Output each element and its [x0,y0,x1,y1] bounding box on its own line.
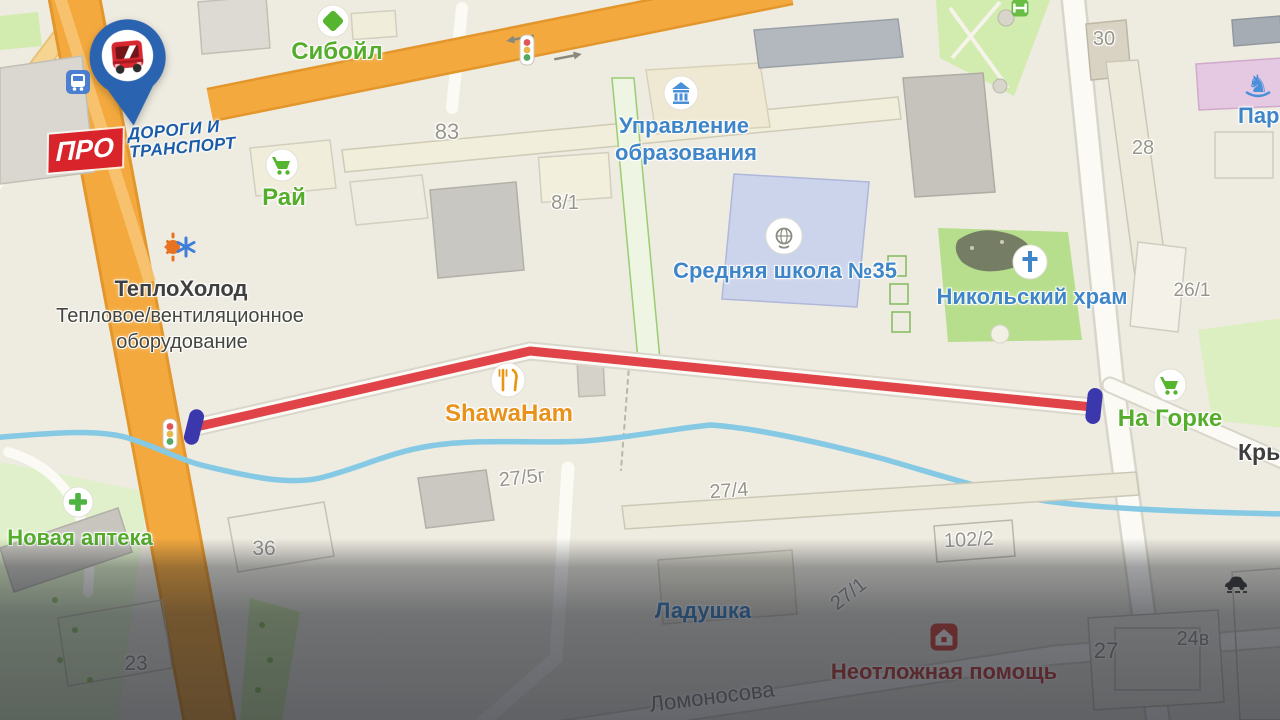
poi-label-nagorke[interactable]: На Горке [1118,405,1222,433]
building-number-28: 28 [1132,137,1154,160]
brand-pro-badge: ПРО [48,128,123,173]
poi-label-teplokholod[interactable]: ТеплоХолод [114,276,247,302]
bus-pin-icon [81,14,177,137]
poi-label-rai[interactable]: Рай [262,184,306,212]
building-number-83: 83 [435,119,459,145]
closure-info-banner: ПЕРЕКРЫТИЕ В ПЕРИОД ПРАЗДНОВАНИЯ РОЖДЕСТ… [0,538,1280,720]
poi-sublabel-teplokholod-1: Тепловое/вентиляционное [56,305,304,328]
map-canvas[interactable]: ♞ Сибойл Рай 83 8/1 Управление образован… [0,0,1280,720]
poi-label-khram[interactable]: Никольский храм [936,284,1127,310]
building-number-27-4: 27/4 [709,479,749,505]
brand-logo: ПРО ДОРОГИ И ТРАНСПОРТ [29,1,263,190]
poi-label-upravlenie-line1[interactable]: Управление [619,113,749,139]
building-number-26-1: 26/1 [1174,280,1211,302]
poi-sublabel-teplokholod-2: оборудование [116,331,248,354]
edge-label-kry: Кры [1238,439,1280,466]
edge-label-park[interactable]: Пар [1238,103,1280,129]
poi-label-school[interactable]: Средняя школа №35 [673,258,897,284]
poi-label-upravlenie-line2[interactable]: образования [615,140,757,166]
poi-label-siboil[interactable]: Сибойл [291,38,383,66]
poi-label-shawaham[interactable]: ShawaHam [445,400,573,428]
brand-wordmark: ДОРОГИ И ТРАНСПОРТ [127,116,236,161]
building-number-30: 30 [1093,28,1115,51]
building-number-8-1: 8/1 [551,192,579,215]
building-number-27-5g: 27/5г [498,465,546,493]
